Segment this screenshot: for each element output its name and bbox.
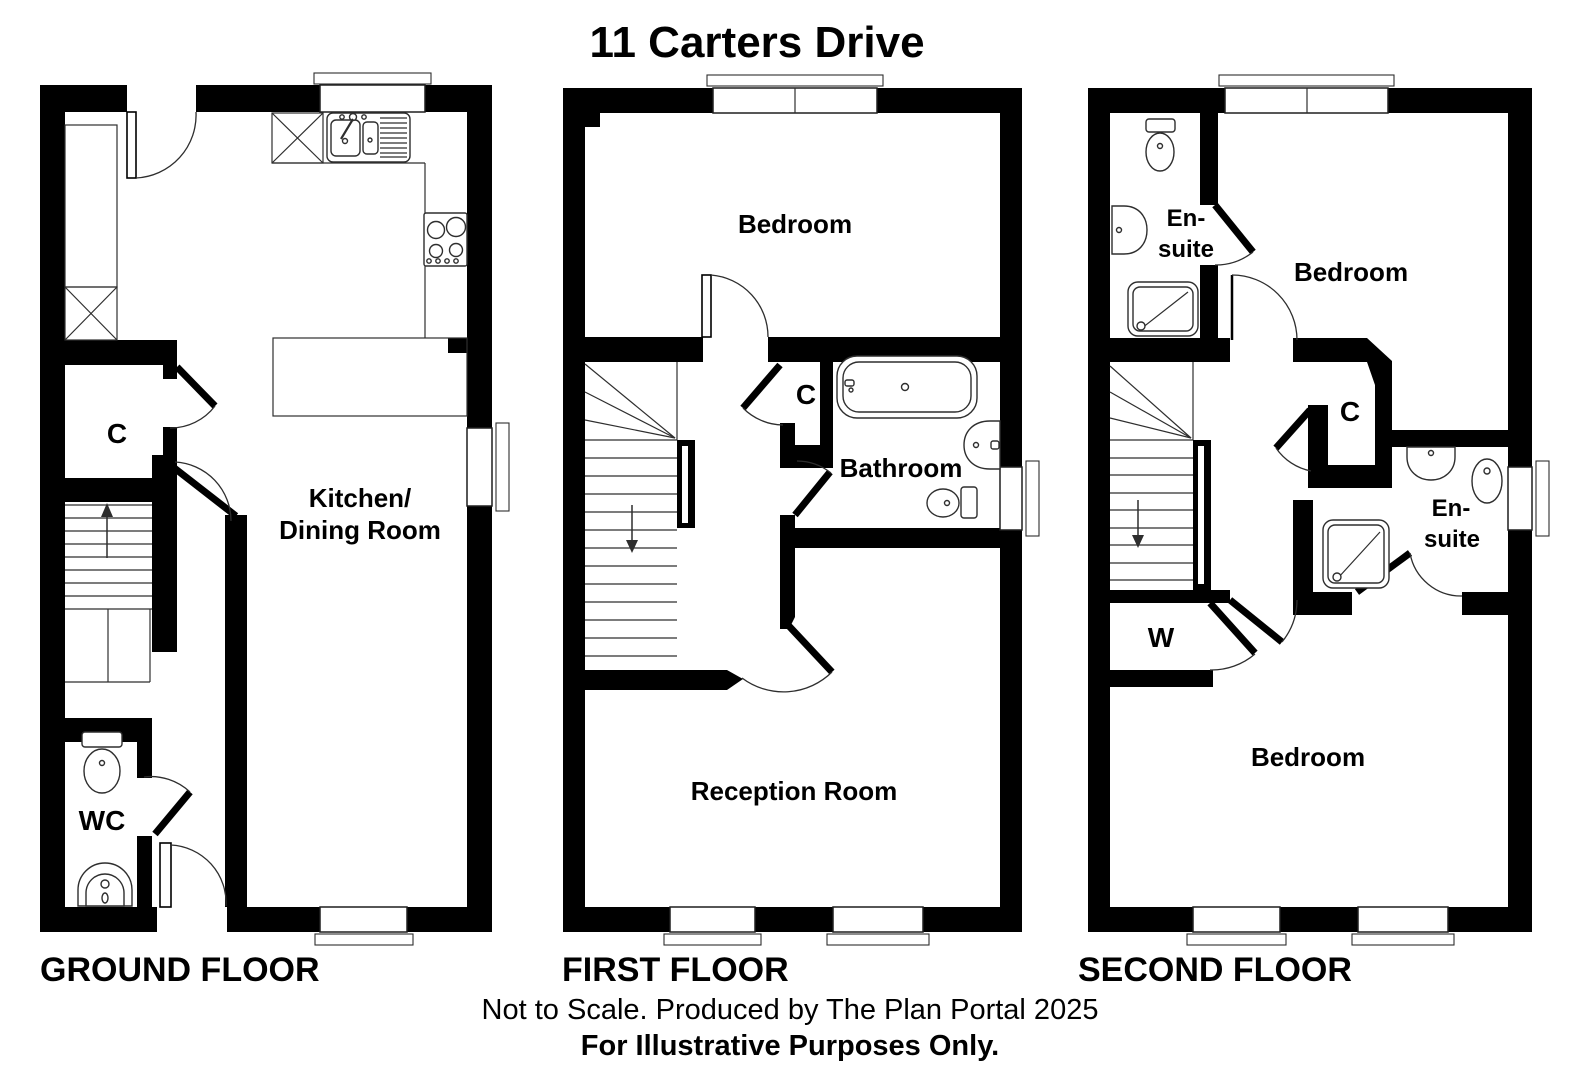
room-label-closet: C — [1340, 396, 1360, 427]
window-sill — [1536, 461, 1549, 536]
room-label-ensuite1-2: suite — [1158, 236, 1214, 263]
room-label-kitchen-1: Kitchen/ — [309, 483, 412, 513]
toilet-icon — [927, 487, 977, 518]
room-label-wardrobe: W — [1148, 622, 1175, 653]
window-sill — [664, 934, 761, 945]
door-leaf — [702, 275, 711, 337]
window-sill — [314, 73, 431, 84]
bathtub-icon — [837, 356, 977, 418]
window — [1000, 467, 1022, 530]
room-label-wc: WC — [79, 805, 126, 836]
room-label-ensuite1-1: En- — [1167, 205, 1206, 232]
sink-icon — [1112, 206, 1147, 254]
room-label-ensuite2-2: suite — [1424, 526, 1480, 553]
window-sill — [315, 934, 413, 945]
door-leaf — [160, 843, 171, 907]
toilet-icon — [82, 732, 122, 793]
window — [1508, 467, 1532, 530]
shower-icon — [1323, 520, 1389, 588]
window — [1193, 907, 1280, 932]
room-label-ensuite2-1: En- — [1432, 495, 1471, 522]
room-label-closet: C — [107, 418, 127, 449]
shower-icon — [1128, 282, 1198, 336]
room-label-bedroom-bottom: Bedroom — [1251, 742, 1365, 772]
window-sill — [1352, 934, 1454, 945]
floor-label-ground: GROUND FLOOR — [40, 951, 320, 989]
floorplan-canvas: 11 Carters Drive — [0, 0, 1589, 1080]
room-label-bedroom-top: Bedroom — [1294, 257, 1408, 287]
window — [467, 428, 492, 506]
window — [320, 85, 425, 112]
room-label-closet: C — [796, 379, 816, 410]
window — [833, 907, 923, 932]
window-sill — [496, 423, 509, 511]
toilet-icon — [1472, 459, 1502, 503]
window — [670, 907, 755, 932]
window-sill — [1187, 934, 1286, 945]
window — [320, 907, 407, 932]
window-sill — [707, 75, 883, 86]
floor-label-first: FIRST FLOOR — [562, 951, 789, 989]
window-sill — [1026, 461, 1039, 536]
window-sill — [827, 934, 929, 945]
room-label-kitchen-2: Dining Room — [279, 515, 441, 545]
room-label-bathroom: Bathroom — [840, 453, 963, 483]
window — [1358, 907, 1448, 932]
door-leaf — [127, 112, 136, 178]
plan-title: 11 Carters Drive — [589, 18, 924, 67]
toilet-icon — [1146, 119, 1175, 171]
room-label-reception: Reception Room — [691, 776, 898, 806]
window-sill — [1219, 75, 1394, 86]
hob-icon — [424, 213, 467, 266]
footer-disclaimer: Not to Scale. Produced by The Plan Porta… — [482, 994, 1099, 1026]
floor-label-second: SECOND FLOOR — [1078, 951, 1352, 989]
room-label-bedroom: Bedroom — [738, 209, 852, 239]
kitchen-sink-icon — [327, 113, 410, 162]
footer-illustrative: For Illustrative Purposes Only. — [581, 1030, 999, 1062]
